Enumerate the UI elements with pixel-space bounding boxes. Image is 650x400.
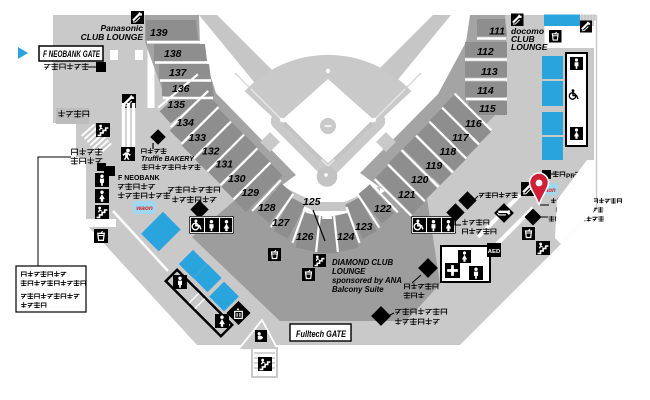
svg-text:122: 122	[374, 203, 392, 215]
svg-text:F NEOBANK GATE: F NEOBANK GATE	[43, 49, 101, 59]
svg-text:135: 135	[168, 99, 186, 111]
svg-text:136: 136	[172, 83, 190, 95]
svg-text:113: 113	[481, 66, 498, 78]
svg-text:137: 137	[169, 67, 188, 79]
svg-text:124: 124	[337, 231, 355, 243]
svg-text:128: 128	[258, 202, 276, 214]
svg-text:111: 111	[489, 26, 505, 38]
svg-text:131: 131	[216, 159, 234, 171]
svg-text:DIAMOND CLUB: DIAMOND CLUB	[332, 258, 393, 267]
svg-text:129: 129	[242, 187, 260, 199]
svg-text:114: 114	[477, 85, 494, 97]
svg-text:125: 125	[303, 196, 321, 208]
svg-text:AED: AED	[488, 249, 500, 255]
svg-text:LOUNGE: LOUNGE	[511, 42, 548, 52]
svg-text:115: 115	[479, 103, 496, 115]
svg-text:134: 134	[177, 117, 195, 129]
svg-text:127: 127	[272, 217, 291, 229]
svg-text:120: 120	[411, 174, 429, 186]
svg-text:118: 118	[440, 146, 457, 158]
svg-text:Balcony Suite: Balcony Suite	[332, 285, 384, 294]
svg-text:138: 138	[164, 48, 182, 60]
svg-text:Truffle BAKERY: Truffle BAKERY	[141, 156, 195, 163]
svg-text:126: 126	[296, 231, 314, 243]
svg-text:waon: waon	[136, 205, 153, 212]
svg-text:130: 130	[228, 173, 246, 185]
svg-text:116: 116	[465, 118, 482, 130]
svg-text:121: 121	[398, 189, 416, 201]
svg-text:119: 119	[426, 160, 443, 172]
svg-text:123: 123	[355, 221, 373, 233]
svg-text:LOUNGE: LOUNGE	[332, 267, 366, 276]
svg-text:sponsored by ANA: sponsored by ANA	[332, 276, 402, 285]
svg-text:117: 117	[452, 132, 470, 144]
svg-text:133: 133	[189, 132, 207, 144]
svg-text:Fulltech GATE: Fulltech GATE	[296, 329, 347, 340]
svg-text:F NEOBANK: F NEOBANK	[118, 175, 160, 182]
svg-text:132: 132	[202, 146, 220, 158]
svg-text:CLUB LOUNGE: CLUB LOUNGE	[81, 32, 144, 42]
svg-text:112: 112	[477, 46, 494, 58]
svg-text:139: 139	[150, 27, 168, 39]
